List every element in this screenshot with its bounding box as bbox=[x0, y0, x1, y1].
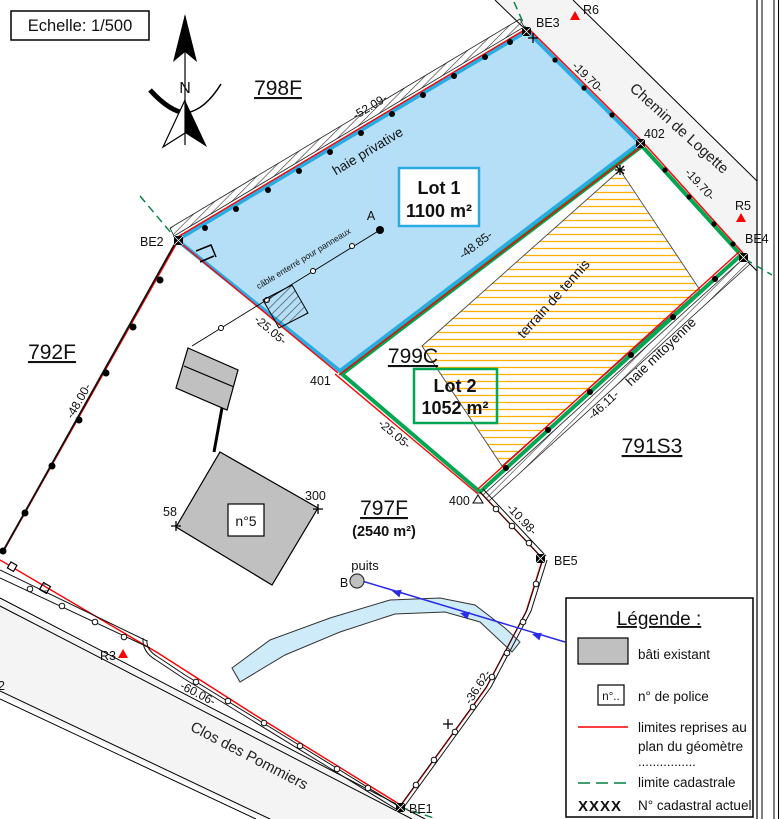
parcel-799C: 799C bbox=[388, 345, 438, 368]
legend-dotted-row: ................ bbox=[638, 754, 696, 769]
lot1-area-label: 1100 m² bbox=[406, 201, 472, 221]
point-A-marker bbox=[376, 226, 384, 234]
legend-limites-line2: plan du géomètre bbox=[638, 739, 743, 754]
house-number: n°5 bbox=[235, 513, 256, 529]
label-A: A bbox=[367, 209, 376, 223]
legend-limites-line1: limites reprises au bbox=[638, 720, 747, 735]
label-B: B bbox=[340, 576, 348, 590]
parcel-792F: 792F bbox=[28, 341, 76, 364]
legend-title: Légende : bbox=[617, 609, 702, 630]
scale-label: Echelle: 1/500 bbox=[28, 17, 133, 35]
shed bbox=[176, 348, 238, 410]
label-402: 402 bbox=[644, 127, 665, 141]
meas-25-05-b: -25.05- bbox=[376, 416, 414, 451]
meas-48-00: -48.00- bbox=[63, 381, 94, 421]
legend: Légende : bâti existant n°.. n° de polic… bbox=[566, 598, 753, 817]
north-compass: N bbox=[150, 14, 221, 147]
label-BE3: BE3 bbox=[536, 16, 560, 30]
label-400: 400 bbox=[449, 494, 470, 508]
stream bbox=[232, 598, 520, 682]
existing-buildings: n°5 bbox=[176, 348, 318, 585]
north-label: N bbox=[179, 80, 191, 97]
label-BE5: BE5 bbox=[554, 554, 578, 568]
label-BE4: BE4 bbox=[745, 232, 769, 246]
lot1-label-box: Lot 1 1100 m² bbox=[399, 168, 479, 226]
legend-bati-label: bâti existant bbox=[638, 647, 710, 662]
meas-10-98: -10.98- bbox=[504, 501, 540, 538]
parcel-797F: 797F bbox=[360, 497, 408, 520]
label-BE1: BE1 bbox=[409, 802, 433, 816]
label-2: 2 bbox=[0, 679, 5, 693]
parcel-797F-area: (2540 m²) bbox=[352, 524, 416, 540]
legend-police-box-label: n°.. bbox=[602, 691, 619, 703]
label-300: 300 bbox=[305, 489, 326, 503]
legend-cadastrale-label: limite cadastrale bbox=[638, 775, 736, 790]
road-clos-des-pommiers bbox=[0, 598, 425, 819]
legend-police-label: n° de police bbox=[638, 689, 709, 704]
lot2-area-label: 1052 m² bbox=[421, 398, 488, 418]
label-R6: R6 bbox=[583, 3, 599, 17]
point-400-marker bbox=[473, 495, 483, 503]
legend-bati-swatch bbox=[578, 638, 628, 664]
cadastral-plan: n°5 bbox=[0, 0, 780, 819]
label-R3: R3 bbox=[100, 649, 116, 663]
lot1-name: Lot 1 bbox=[418, 178, 461, 198]
label-401: 401 bbox=[310, 374, 331, 388]
parcel-791S3: 791S3 bbox=[622, 435, 683, 458]
label-BE2: BE2 bbox=[140, 235, 164, 249]
legend-xxxx: XXXX bbox=[578, 798, 622, 815]
label-58: 58 bbox=[163, 505, 177, 519]
legend-cadastral-actuel-label: N° cadastral actuel bbox=[638, 798, 751, 813]
puits-label: puits bbox=[351, 558, 379, 573]
plan-canvas: n°5 bbox=[0, 0, 780, 819]
scale-box: Echelle: 1/500 bbox=[11, 11, 149, 40]
label-R5: R5 bbox=[735, 199, 751, 213]
well-symbol bbox=[350, 574, 364, 588]
road-right-vertical bbox=[757, 0, 779, 819]
lot2-name: Lot 2 bbox=[434, 376, 477, 396]
parcel-798F: 798F bbox=[254, 77, 302, 100]
